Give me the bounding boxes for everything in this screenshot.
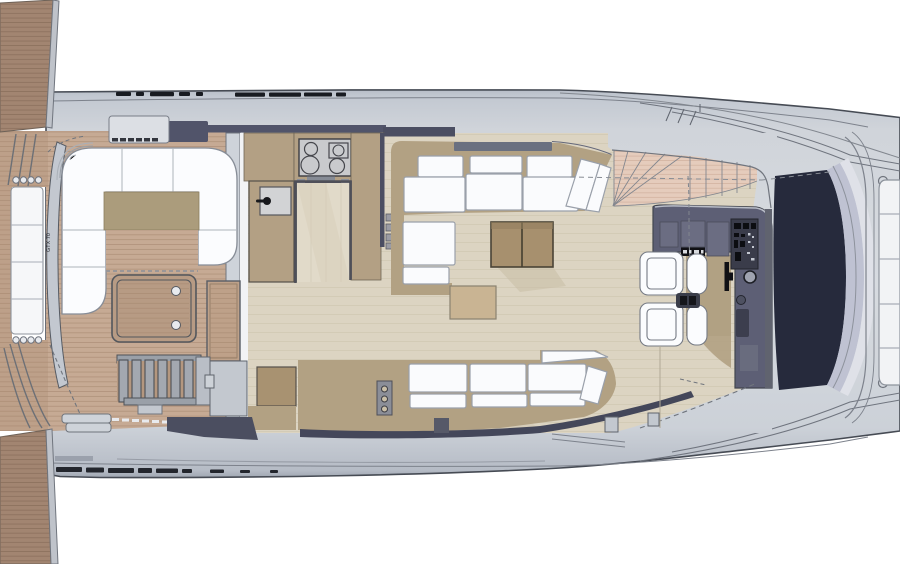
svg-text:GTX 70: GTX 70 bbox=[46, 233, 52, 252]
